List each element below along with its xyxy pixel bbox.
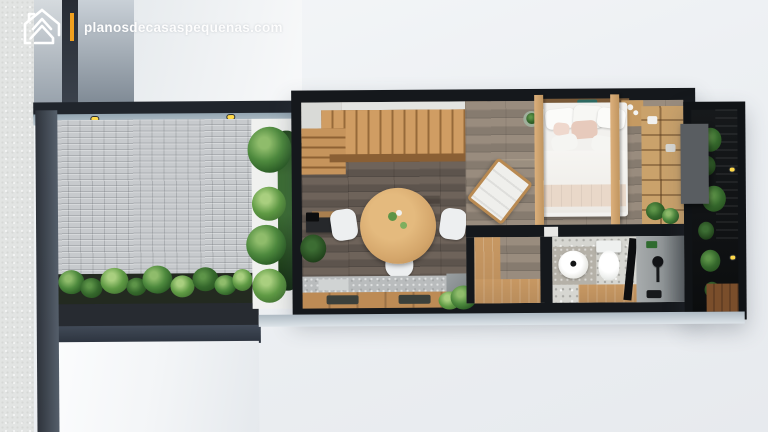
plan-tilt-wrapper [0, 0, 768, 432]
shrub-plant [232, 269, 252, 291]
glass-sill-edge [259, 311, 745, 326]
shrub-plant [142, 265, 172, 293]
table-decor-dish [396, 210, 402, 216]
concrete-patch [318, 279, 348, 290]
shower-towel-green [646, 241, 657, 248]
console-plant [300, 234, 326, 262]
garden-light-2 [730, 256, 735, 260]
shrub-plant [100, 268, 128, 294]
tv-icon [306, 212, 319, 221]
palm-plant [246, 225, 286, 265]
bedside-vase [633, 110, 638, 115]
wardrobe-item [666, 144, 676, 152]
shrub-plant [80, 278, 102, 298]
garden-plant [700, 250, 720, 272]
palm-plant [247, 127, 291, 173]
palm-plant [252, 187, 286, 221]
shower-bucket [647, 290, 662, 298]
gray-roof-panel [680, 124, 709, 204]
table-decor-plant [400, 222, 407, 229]
dining-chair-left [329, 208, 359, 242]
wardrobe-plant [662, 208, 679, 224]
bed-post-beam-right [610, 94, 620, 224]
bathroom-door-gap [544, 227, 558, 237]
l-counter-horizontal [474, 279, 540, 303]
shower-head-stem [656, 266, 659, 282]
garden-light-1 [730, 168, 735, 172]
sink-faucet-icon [570, 261, 576, 267]
garden-stone-path [715, 110, 738, 240]
stair-handrail-ledge [330, 153, 466, 162]
toilet-bowl [598, 250, 619, 280]
doormat [399, 295, 431, 304]
bedside-vase [627, 104, 633, 110]
shrub-plant [170, 275, 194, 297]
dining-chair-right [438, 207, 468, 241]
kitchen-bath-wall [540, 237, 552, 303]
staircase-lower-run [301, 128, 345, 174]
watermark-text: planosdecasaspequenas.com [84, 20, 283, 35]
dining-table [360, 188, 437, 265]
watermark: planosdecasaspequenas.com [20, 4, 283, 50]
front-wall-face [57, 341, 260, 432]
floorplan-render: planosdecasaspequenas.com [0, 0, 768, 432]
doormat [327, 295, 359, 304]
bed-post-beam-left [534, 95, 544, 225]
house-logo-icon [20, 5, 64, 49]
kitchen-left-wall [466, 237, 474, 303]
wardrobe-item [647, 116, 657, 124]
logo-separator-bar [70, 13, 74, 41]
garden-plant [698, 222, 714, 240]
palm-plant [252, 269, 286, 303]
garden-rear-deck [706, 284, 738, 312]
front-wall-left-jamb [35, 110, 59, 432]
